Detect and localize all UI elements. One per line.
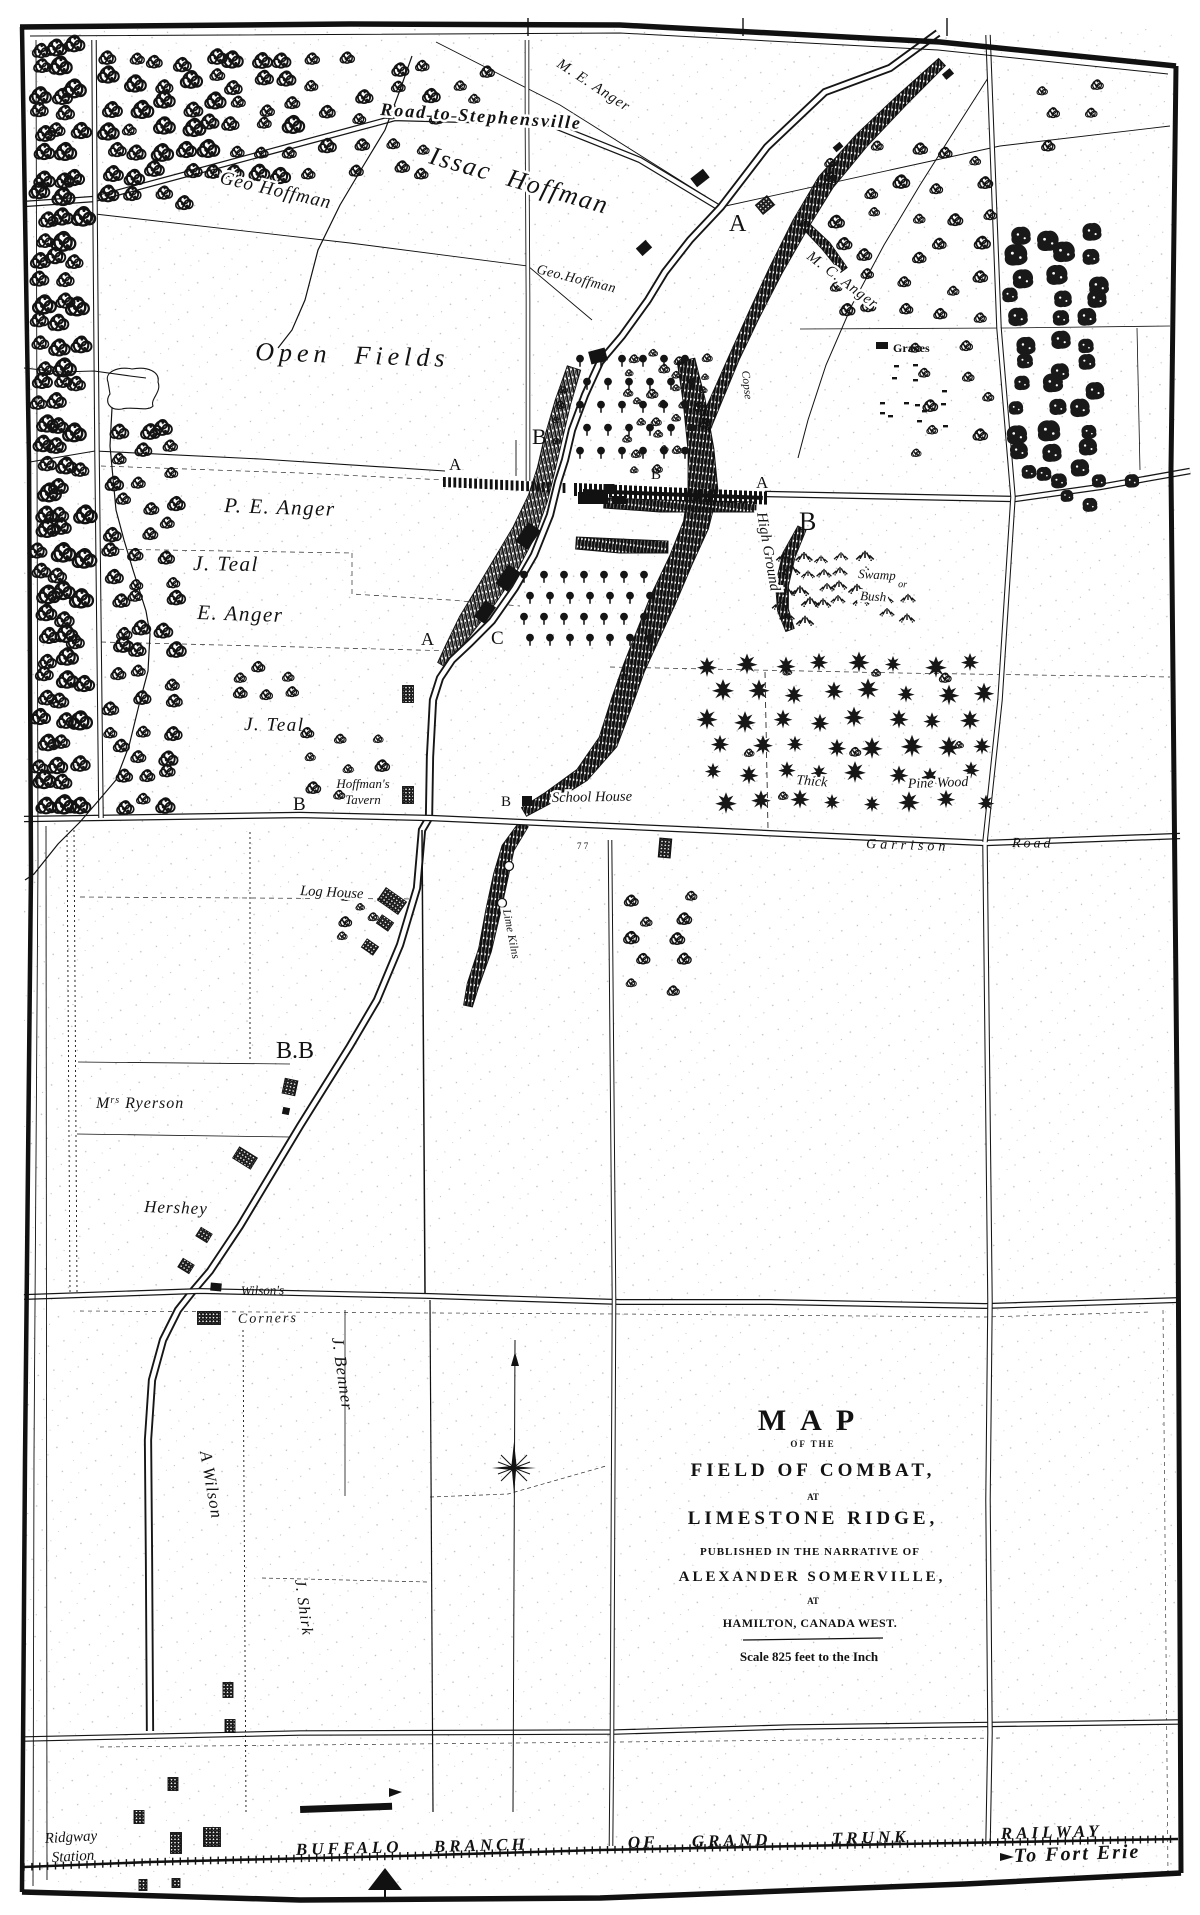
svg-text:B: B [501, 794, 511, 810]
svg-text:P. E. Anger: P. E. Anger [223, 493, 336, 521]
svg-text:ALEXANDER SOMERVILLE,: ALEXANDER SOMERVILLE, [679, 1569, 946, 1585]
svg-text:Ridgway: Ridgway [43, 1828, 98, 1847]
svg-text:Corners: Corners [238, 1311, 298, 1327]
svg-text:BRANCH: BRANCH [433, 1835, 529, 1857]
svg-text:Station: Station [51, 1848, 94, 1866]
svg-text:7 7: 7 7 [577, 841, 589, 851]
svg-text:A: A [449, 455, 462, 474]
svg-text:B: B [532, 424, 547, 449]
svg-text:E. Anger: E. Anger [196, 600, 284, 627]
svg-text:Graves: Graves [893, 341, 930, 355]
svg-text:To Fort Erie: To Fort Erie [1013, 1841, 1140, 1867]
svg-text:HAMILTON, CANADA WEST.: HAMILTON, CANADA WEST. [723, 1616, 898, 1630]
svg-text:OF: OF [628, 1832, 658, 1852]
svg-text:Mrs Ryerson: Mrs Ryerson [95, 1095, 184, 1112]
svg-text:Scale 825 feet to the Inch: Scale 825 feet to the Inch [740, 1649, 879, 1664]
svg-text:B: B [799, 507, 816, 536]
svg-text:J. Teal: J. Teal [193, 551, 259, 576]
svg-text:School House: School House [552, 789, 633, 806]
svg-text:RAILWAY: RAILWAY [1000, 1821, 1103, 1843]
svg-text:OF THE: OF THE [790, 1439, 835, 1449]
svg-text:TRUNK: TRUNK [832, 1827, 910, 1848]
svg-text:J. Teal: J. Teal [244, 714, 305, 736]
svg-text:Tavern: Tavern [345, 792, 381, 807]
svg-text:AT: AT [807, 1492, 819, 1502]
svg-text:Pine Wood: Pine Wood [907, 775, 970, 792]
svg-text:Garrison: Garrison [866, 837, 950, 855]
svg-text:C: C [491, 628, 504, 649]
svg-text:B: B [293, 794, 306, 815]
svg-text:FIELD OF COMBAT,: FIELD OF COMBAT, [691, 1460, 936, 1481]
svg-text:BUFFALO: BUFFALO [295, 1837, 403, 1859]
svg-text:B.B: B.B [276, 1038, 314, 1064]
svg-text:Road: Road [1011, 836, 1054, 852]
svg-text:or: or [898, 579, 908, 590]
svg-text:Bush: Bush [860, 588, 887, 604]
svg-text:Thick: Thick [796, 773, 829, 791]
svg-text:Hoffman's: Hoffman's [335, 776, 389, 791]
svg-text:PUBLISHED IN THE NARRATIVE OF: PUBLISHED IN THE NARRATIVE OF [700, 1546, 920, 1558]
svg-text:LIMESTONE RIDGE,: LIMESTONE RIDGE, [688, 1508, 939, 1529]
svg-text:A: A [421, 629, 434, 649]
svg-text:GRAND: GRAND [692, 1830, 772, 1851]
svg-text:B: B [651, 467, 661, 483]
svg-text:Log House: Log House [299, 883, 365, 902]
svg-text:A: A [617, 665, 630, 684]
svg-text:MAP: MAP [758, 1404, 868, 1437]
svg-text:A: A [729, 211, 747, 237]
svg-text:Swamp: Swamp [858, 566, 897, 583]
svg-text:AT: AT [807, 1596, 819, 1606]
svg-text:A: A [756, 473, 769, 492]
svg-text:Hershey: Hershey [143, 1197, 208, 1218]
svg-text:Wilson's: Wilson's [241, 1282, 284, 1298]
